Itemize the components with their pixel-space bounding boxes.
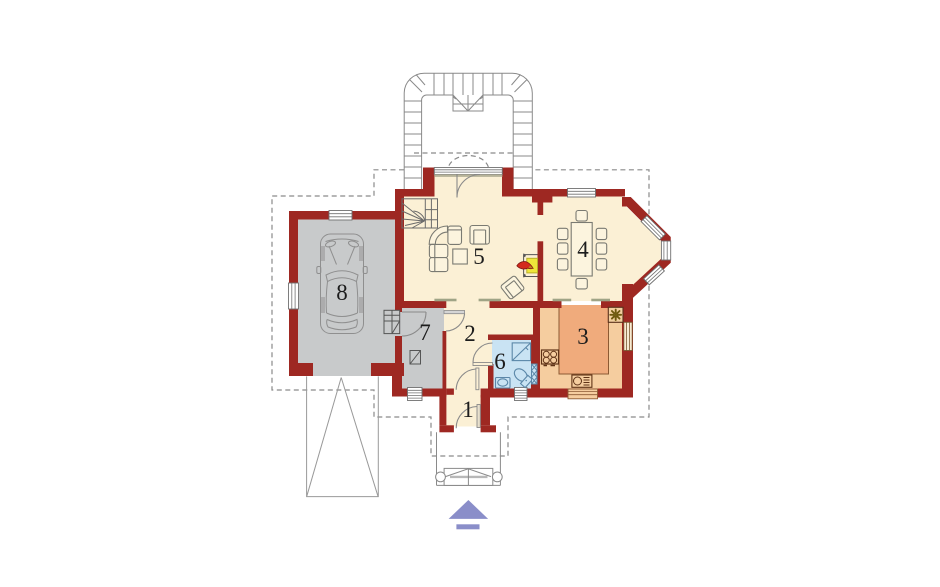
svg-text:2: 2: [464, 321, 476, 346]
svg-text:8: 8: [336, 280, 348, 305]
svg-text:1: 1: [462, 397, 474, 422]
svg-text:3: 3: [577, 324, 589, 349]
svg-text:5: 5: [473, 244, 485, 269]
svg-text:7: 7: [419, 320, 431, 345]
svg-text:4: 4: [577, 237, 589, 262]
svg-text:6: 6: [494, 349, 506, 374]
